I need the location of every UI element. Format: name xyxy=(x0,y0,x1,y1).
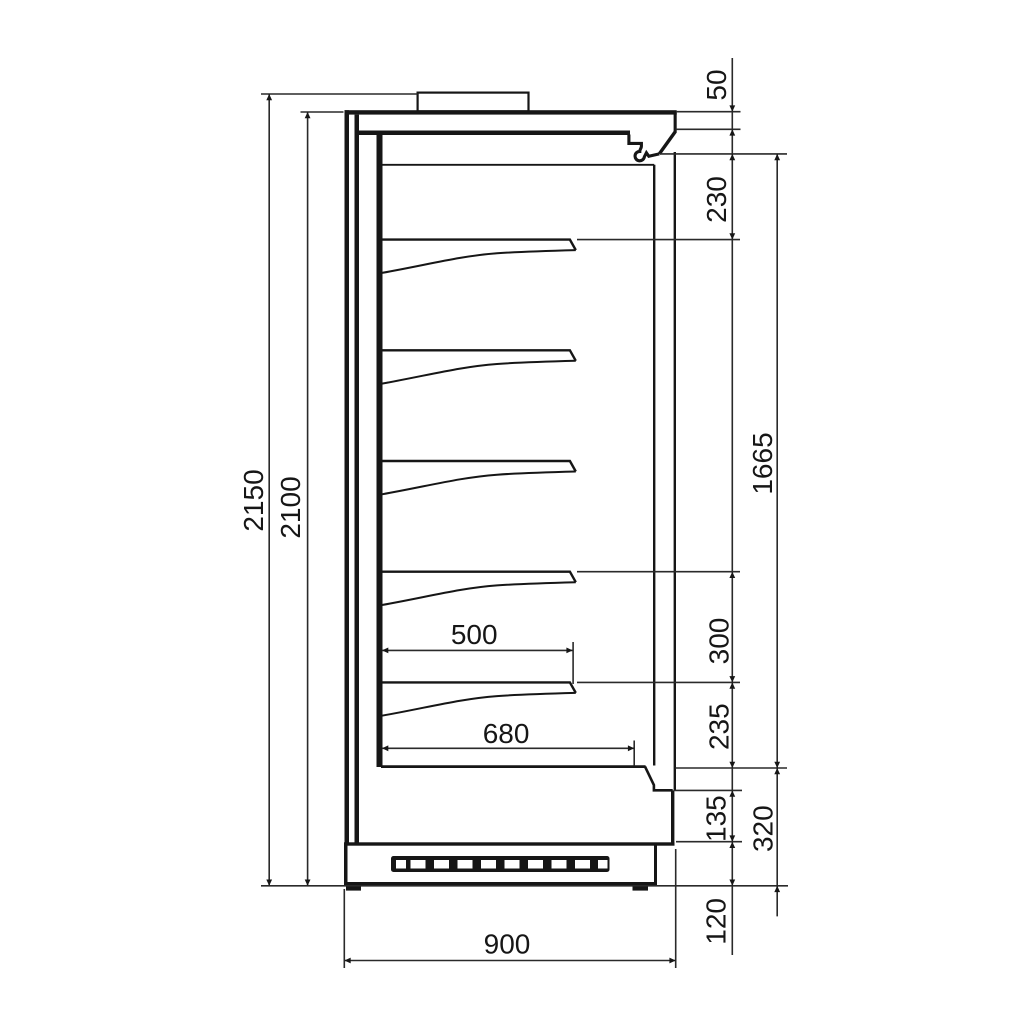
svg-text:900: 900 xyxy=(484,929,531,960)
svg-text:680: 680 xyxy=(483,718,530,749)
svg-text:230: 230 xyxy=(701,176,732,223)
svg-text:1665: 1665 xyxy=(747,432,778,494)
svg-text:300: 300 xyxy=(703,618,734,665)
svg-text:320: 320 xyxy=(748,805,779,852)
svg-text:500: 500 xyxy=(451,619,498,650)
svg-text:135: 135 xyxy=(701,795,732,842)
svg-text:2150: 2150 xyxy=(238,469,269,531)
svg-text:50: 50 xyxy=(701,69,732,100)
svg-text:2100: 2100 xyxy=(275,476,306,538)
svg-text:235: 235 xyxy=(703,703,734,750)
svg-text:120: 120 xyxy=(700,898,731,945)
